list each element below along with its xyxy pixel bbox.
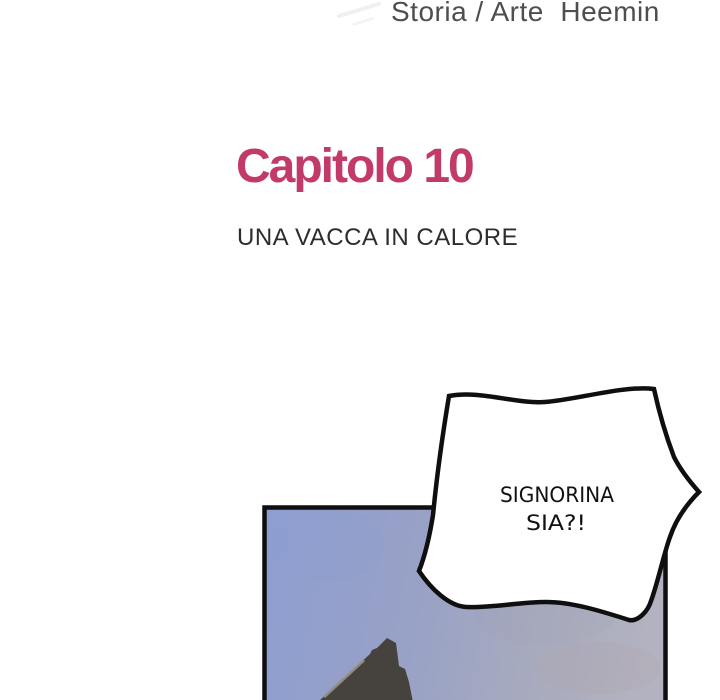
speech-bubble-text-line2: SIA?! <box>526 511 586 535</box>
comic-page: Storia / Arte Heemin Capitolo 10 UNA VAC… <box>0 0 720 700</box>
speech-bubble-text-line1: SIGNORINA <box>500 483 615 507</box>
cloud-smudge <box>536 642 660 694</box>
cloud-smudge <box>275 510 385 580</box>
speech-bubble: SIGNORINA SIA?! <box>419 388 699 620</box>
comic-panel-scene: SIGNORINA SIA?! <box>0 0 720 700</box>
